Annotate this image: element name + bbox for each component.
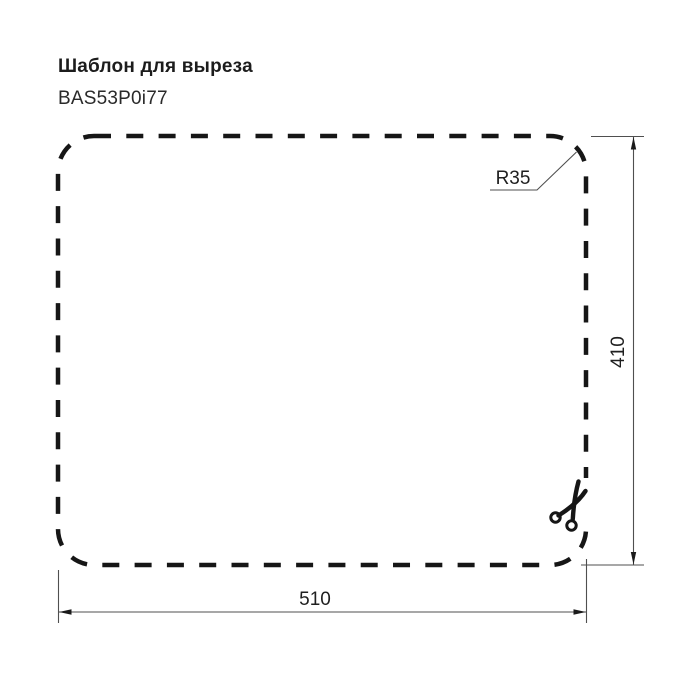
cutout-outline — [58, 136, 586, 565]
width-dimension-label: 510 — [299, 589, 331, 610]
scissors-line-gap — [579, 478, 595, 523]
cutout-template-page: Шаблон для выреза BAS53P0i77 R35 510 — [0, 0, 700, 700]
cutout-diagram: R35 510 41 — [0, 0, 700, 700]
width-dimension: 510 — [59, 559, 587, 623]
radius-label: R35 — [496, 168, 531, 189]
radius-callout: R35 — [490, 152, 577, 190]
height-dimension-label: 410 — [608, 336, 629, 368]
